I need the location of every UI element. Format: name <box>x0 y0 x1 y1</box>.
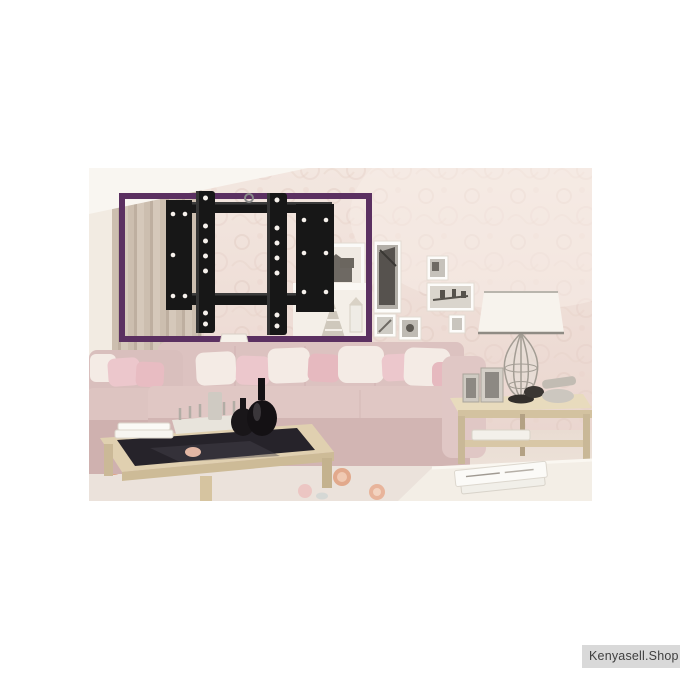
pillow <box>235 355 270 385</box>
house-sketch-roof <box>340 258 354 268</box>
framed-photo-small-top <box>427 256 448 280</box>
bracket-right-arm <box>267 193 287 335</box>
arm-highlight <box>267 193 270 335</box>
living-room-photo <box>0 0 680 680</box>
flower-center <box>337 472 347 482</box>
arm-hole <box>275 241 280 246</box>
framed-photo-small-a <box>374 314 396 337</box>
screw-hole <box>302 290 307 295</box>
bracket-right-plate <box>296 204 334 312</box>
screw-hole <box>302 251 307 256</box>
screw-hole <box>324 290 329 295</box>
pillow <box>107 357 141 387</box>
arm-hole <box>275 313 280 318</box>
silver-cup <box>208 392 222 420</box>
arm-highlight <box>196 191 199 333</box>
table-leg <box>104 444 113 476</box>
arm-hole <box>275 271 280 276</box>
framed-photo-small-b <box>399 317 421 340</box>
flower-center <box>373 488 381 496</box>
arm-hole <box>203 254 208 259</box>
pillow <box>267 347 310 383</box>
telephone-base <box>542 389 574 403</box>
arm-hole <box>203 224 208 229</box>
framed-photo-wide <box>427 283 474 311</box>
screw-hole <box>171 253 176 258</box>
pillow <box>338 346 384 383</box>
table-leg <box>200 476 212 505</box>
table-leg <box>458 416 465 464</box>
table-leg <box>322 458 332 488</box>
vase-highlight <box>253 403 261 421</box>
screw-hole <box>324 251 329 256</box>
watermark-text: Kenyasell.Shop <box>589 649 679 663</box>
bracket-left-plate <box>166 200 192 310</box>
photo <box>452 318 462 330</box>
dark-bowl <box>524 386 544 398</box>
sketch-mark <box>440 290 445 298</box>
screw-hole <box>183 294 188 299</box>
product-image-canvas: Kenyasell.Shop <box>0 0 680 680</box>
photo-detail <box>432 262 439 271</box>
plate <box>296 204 334 312</box>
white-book <box>118 423 170 430</box>
arm-hole <box>203 239 208 244</box>
screw-hole <box>171 294 176 299</box>
flower-pink <box>298 484 312 498</box>
framed-photo-large <box>374 241 401 313</box>
frame-photo <box>466 378 476 398</box>
vase-neck <box>258 378 265 400</box>
pillow <box>135 361 164 387</box>
pillow <box>195 351 237 386</box>
arm-hole <box>203 322 208 327</box>
arm-hole <box>275 226 280 231</box>
arm-hole <box>203 311 208 316</box>
sketch-mark <box>461 291 466 298</box>
vase-body <box>247 400 277 436</box>
tower-figurine <box>350 305 362 332</box>
table-shelf <box>465 440 583 447</box>
arm-hole <box>203 269 208 274</box>
arm-hole <box>275 324 280 329</box>
screw-hole <box>171 212 176 217</box>
arm-hole <box>203 196 208 201</box>
leaf <box>316 493 328 500</box>
plate <box>166 200 192 310</box>
watermark-badge: Kenyasell.Shop <box>582 645 680 668</box>
photo-detail <box>406 324 414 332</box>
arm-hole <box>275 256 280 261</box>
white-tray <box>115 430 173 438</box>
bracket-left-arm <box>196 191 215 333</box>
sketch-mark <box>452 289 456 298</box>
framed-photo-small-c <box>449 315 465 333</box>
screw-hole <box>324 218 329 223</box>
arm-hole <box>275 198 280 203</box>
shelf-books <box>472 430 530 440</box>
pillow <box>307 353 340 383</box>
lamp-shade <box>478 292 564 333</box>
pink-cup <box>185 447 201 457</box>
screw-hole <box>302 218 307 223</box>
screw-hole <box>183 212 188 217</box>
frame-photo <box>485 372 499 398</box>
